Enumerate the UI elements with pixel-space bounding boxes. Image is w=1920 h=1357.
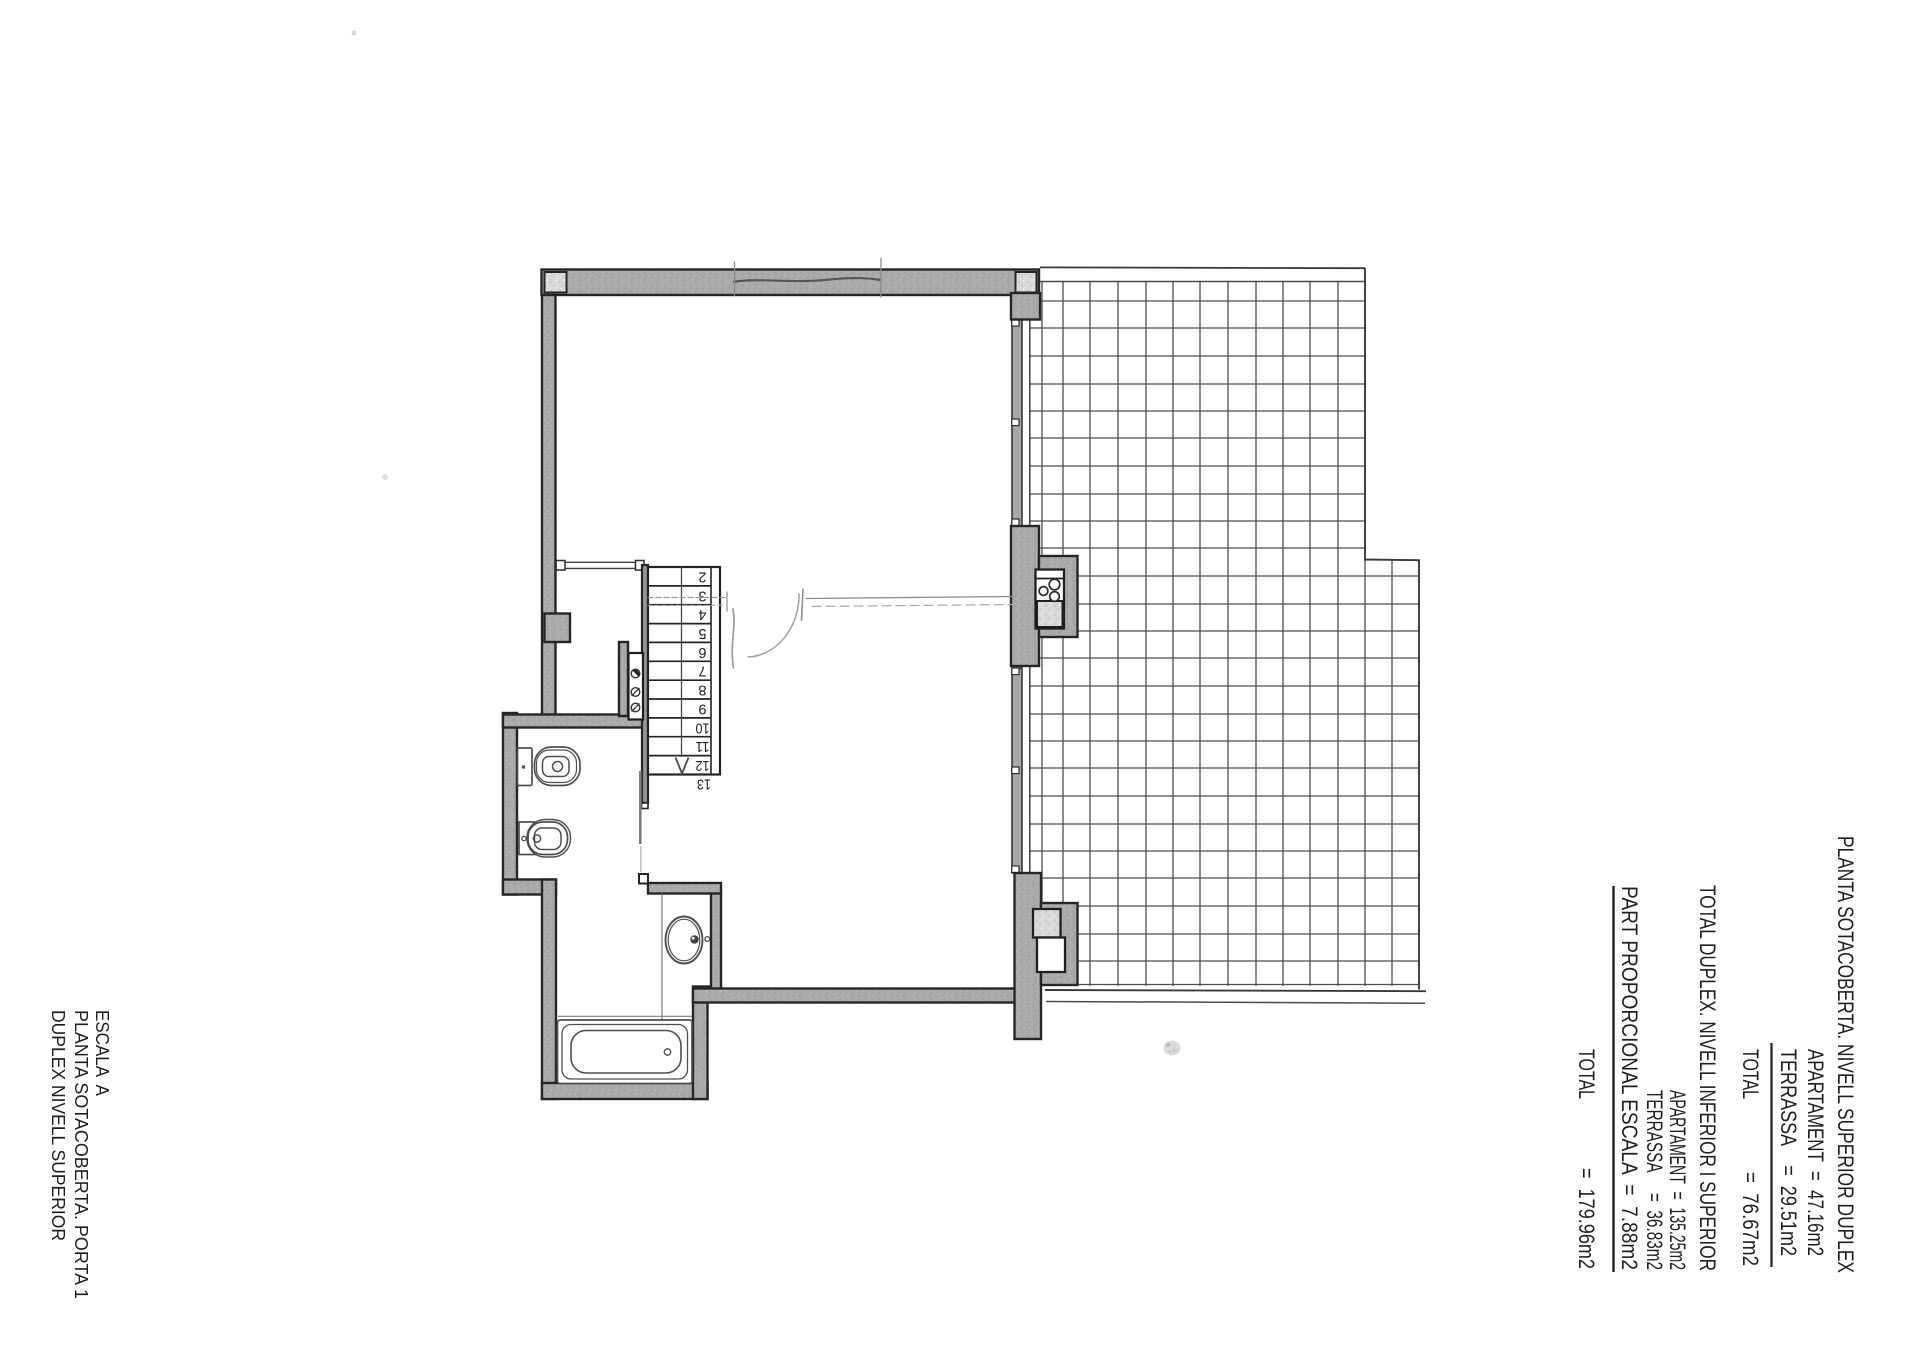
svg-text:TERRASSA = 36.83m2: TERRASSA = 36.83m2 [1642, 1090, 1667, 1270]
svg-text:3: 3 [698, 587, 706, 603]
svg-text:APARTAMENT = 135.25m2: APARTAMENT = 135.25m2 [1665, 1090, 1690, 1270]
svg-text:PART PROPORCIONAL ESCALA = 7: PART PROPORCIONAL ESCALA = 7.88m2 [1617, 886, 1642, 1270]
svg-text:ESCALA A: ESCALA A [92, 1010, 112, 1096]
svg-text:TOTAL DUPLEX. NIVELL INFERIOR: TOTAL DUPLEX. NIVELL INFERIOR I SUPERIOR [1695, 885, 1720, 1271]
svg-text:TERRASSA = 29.51m2: TERRASSA = 29.51m2 [1776, 1049, 1801, 1256]
svg-text:8: 8 [698, 682, 706, 698]
svg-text:13: 13 [697, 776, 711, 792]
svg-text:TOTAL: TOTAL [1574, 1049, 1599, 1099]
svg-text:7: 7 [698, 663, 706, 679]
svg-text:= 76.67m2: = 76.67m2 [1738, 1172, 1763, 1266]
svg-text:PLANTA SOTACOBERTA. PORTA 1: PLANTA SOTACOBERTA. PORTA 1 [71, 1010, 91, 1299]
svg-text:5: 5 [698, 625, 706, 641]
svg-text:12: 12 [696, 757, 710, 773]
svg-text:TOTAL: TOTAL [1738, 1049, 1763, 1099]
svg-text:= 179.96m2: = 179.96m2 [1574, 1168, 1599, 1269]
svg-text:2: 2 [698, 568, 706, 584]
svg-text:6: 6 [698, 644, 706, 660]
svg-text:11: 11 [696, 738, 710, 754]
svg-text:DUPLEX NIVELL SUPERIOR: DUPLEX NIVELL SUPERIOR [48, 1010, 68, 1241]
svg-text:10: 10 [696, 719, 710, 735]
svg-text:PLANTA SOTACOBERTA. NIVELL SUP: PLANTA SOTACOBERTA. NIVELL SUPERIOR DUPL… [1833, 836, 1858, 1273]
svg-text:9: 9 [698, 701, 706, 717]
svg-text:4: 4 [698, 606, 706, 622]
svg-text:APARTAMENT = 47.16m2: APARTAMENT = 47.16m2 [1803, 1049, 1828, 1256]
